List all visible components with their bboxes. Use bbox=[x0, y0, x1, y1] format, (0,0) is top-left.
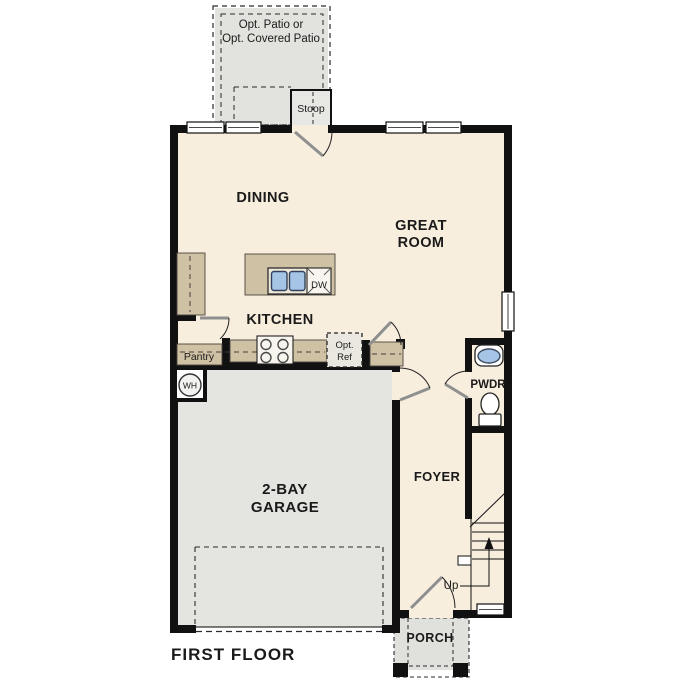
toilet-bowl bbox=[481, 393, 499, 415]
pwdr-label: PWDR bbox=[470, 379, 506, 391]
wall-stair-foyer bbox=[465, 398, 472, 519]
stair-newel bbox=[458, 556, 471, 565]
wh-niche-wall-right bbox=[203, 370, 207, 401]
sink-basin-left bbox=[272, 272, 288, 291]
dishwasher-label: DW bbox=[311, 280, 327, 291]
floor-plan-drawing: Opt. Patio or Opt. Covered Patio Stoop P… bbox=[0, 0, 687, 687]
kitchen-label: KITCHEN bbox=[246, 312, 313, 328]
porch-label: PORCH bbox=[406, 631, 453, 645]
dining-label: DINING bbox=[236, 190, 289, 206]
wall-stub-pantry-counter bbox=[222, 338, 230, 370]
wall-garage-right bbox=[392, 362, 400, 633]
pantry-label: Pantry bbox=[184, 351, 215, 363]
range-stove bbox=[257, 336, 293, 364]
dishwasher: DW bbox=[307, 268, 331, 294]
pwdr-sink bbox=[478, 349, 500, 363]
toilet-tank bbox=[479, 414, 501, 426]
great-room-label-line2: ROOM bbox=[398, 235, 445, 251]
wall-left bbox=[170, 125, 178, 633]
stoop: Stoop bbox=[291, 90, 331, 126]
wall-right bbox=[504, 125, 512, 618]
pantry-tall-cabinet bbox=[177, 253, 205, 315]
floor-plan-page: Opt. Patio or Opt. Covered Patio Stoop P… bbox=[0, 0, 687, 687]
wh-niche-wall-bottom bbox=[177, 398, 207, 402]
wall-pwdr-left-upper bbox=[465, 338, 472, 372]
floor-title: FIRST FLOOR bbox=[171, 645, 295, 664]
sink-basin-right bbox=[290, 272, 306, 291]
porch: PORCH bbox=[393, 617, 469, 677]
water-heater: WH bbox=[177, 370, 207, 402]
foyer-label: FOYER bbox=[414, 469, 461, 484]
opening-garage-door bbox=[392, 372, 400, 400]
wall-pwdr-bottom bbox=[465, 426, 512, 433]
island-sink bbox=[268, 268, 308, 294]
porch-post-left bbox=[393, 663, 408, 677]
patio-label-line2: Opt. Covered Patio bbox=[222, 33, 320, 45]
garage-label-line1: 2-BAY bbox=[262, 481, 308, 498]
wall-garage-post-left bbox=[170, 625, 196, 633]
porch-post-right bbox=[453, 663, 468, 677]
great-room-label-line1: GREAT bbox=[395, 218, 447, 234]
patio-label-line1: Opt. Patio or bbox=[239, 19, 304, 31]
stoop-label: Stoop bbox=[297, 103, 325, 115]
opening-front-door bbox=[409, 610, 453, 618]
opt-ref-label-line1: Opt. bbox=[336, 340, 354, 351]
garage-label-line2: GARAGE bbox=[251, 499, 319, 516]
wall-garage-post-right bbox=[382, 625, 400, 633]
wall-pwdr-top bbox=[465, 338, 512, 345]
opening-back-door bbox=[292, 125, 328, 133]
optional-refrigerator: Opt. Ref bbox=[327, 333, 362, 367]
wh-label: WH bbox=[183, 381, 197, 391]
opt-ref-label-line2: Ref bbox=[337, 352, 352, 363]
